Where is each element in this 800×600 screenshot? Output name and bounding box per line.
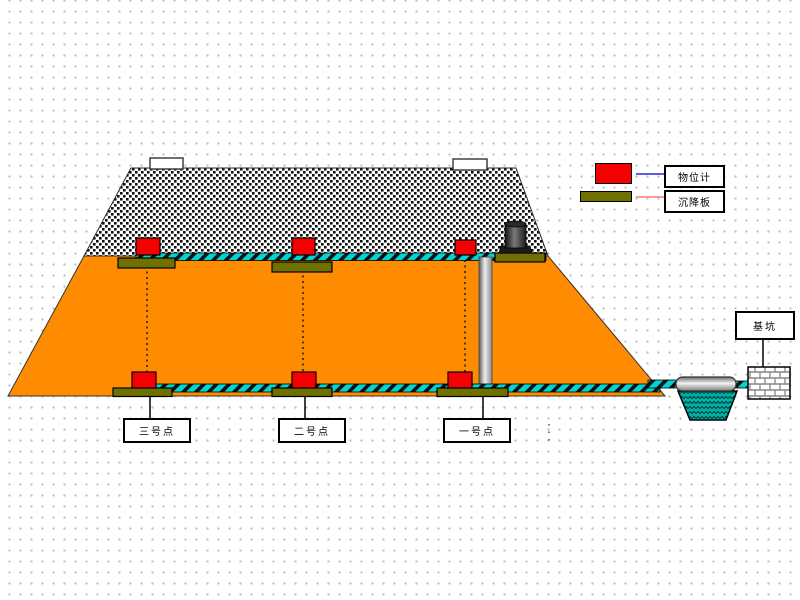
settlement-plate-upper-2 bbox=[272, 262, 332, 272]
point-2-label-box: 二号点 bbox=[278, 418, 346, 443]
settlement-plate-lower-2 bbox=[272, 388, 332, 397]
settlement-plate-lower-1 bbox=[437, 388, 508, 397]
level-gauge-lower-1 bbox=[448, 372, 472, 388]
point-1-label-box: 一号点 bbox=[443, 418, 511, 443]
level-gauge-lower-2 bbox=[292, 372, 316, 388]
level-gauge-upper-2 bbox=[292, 238, 315, 255]
riser-pipe bbox=[479, 257, 492, 386]
settlement-plate-cylinder bbox=[495, 253, 545, 262]
settlement-plate-swatch-icon bbox=[580, 191, 632, 202]
outlet-cylinder bbox=[676, 377, 736, 391]
point-3-label-box: 三号点 bbox=[123, 418, 191, 443]
level-gauge-lower-3 bbox=[132, 372, 156, 388]
crest-marker-left bbox=[150, 158, 183, 169]
settlement-plate-lower-3 bbox=[113, 388, 172, 397]
legend-label-level-gauge: 物位计 bbox=[664, 165, 725, 188]
legend-line-settlement-plate bbox=[636, 196, 664, 198]
hmi-canvas: 物位计 沉降板 基坑 三号点 二号点 一号点 bbox=[0, 0, 800, 600]
embankment-body bbox=[8, 256, 665, 396]
pit-label-box: 基坑 bbox=[735, 311, 795, 340]
level-gauge-upper-1 bbox=[455, 240, 476, 255]
legend-line-level-gauge bbox=[636, 173, 664, 175]
lower-monitoring-pipe bbox=[150, 384, 660, 392]
collection-pool bbox=[678, 391, 737, 420]
level-gauge-swatch-icon bbox=[595, 163, 632, 184]
level-gauge-upper-3 bbox=[136, 238, 160, 255]
embankment-diagram bbox=[0, 0, 800, 600]
brick-wall bbox=[748, 367, 790, 399]
crest-marker-right bbox=[453, 159, 487, 170]
settlement-plate-upper-3 bbox=[118, 258, 175, 268]
legend-label-settlement-plate: 沉降板 bbox=[664, 190, 725, 213]
